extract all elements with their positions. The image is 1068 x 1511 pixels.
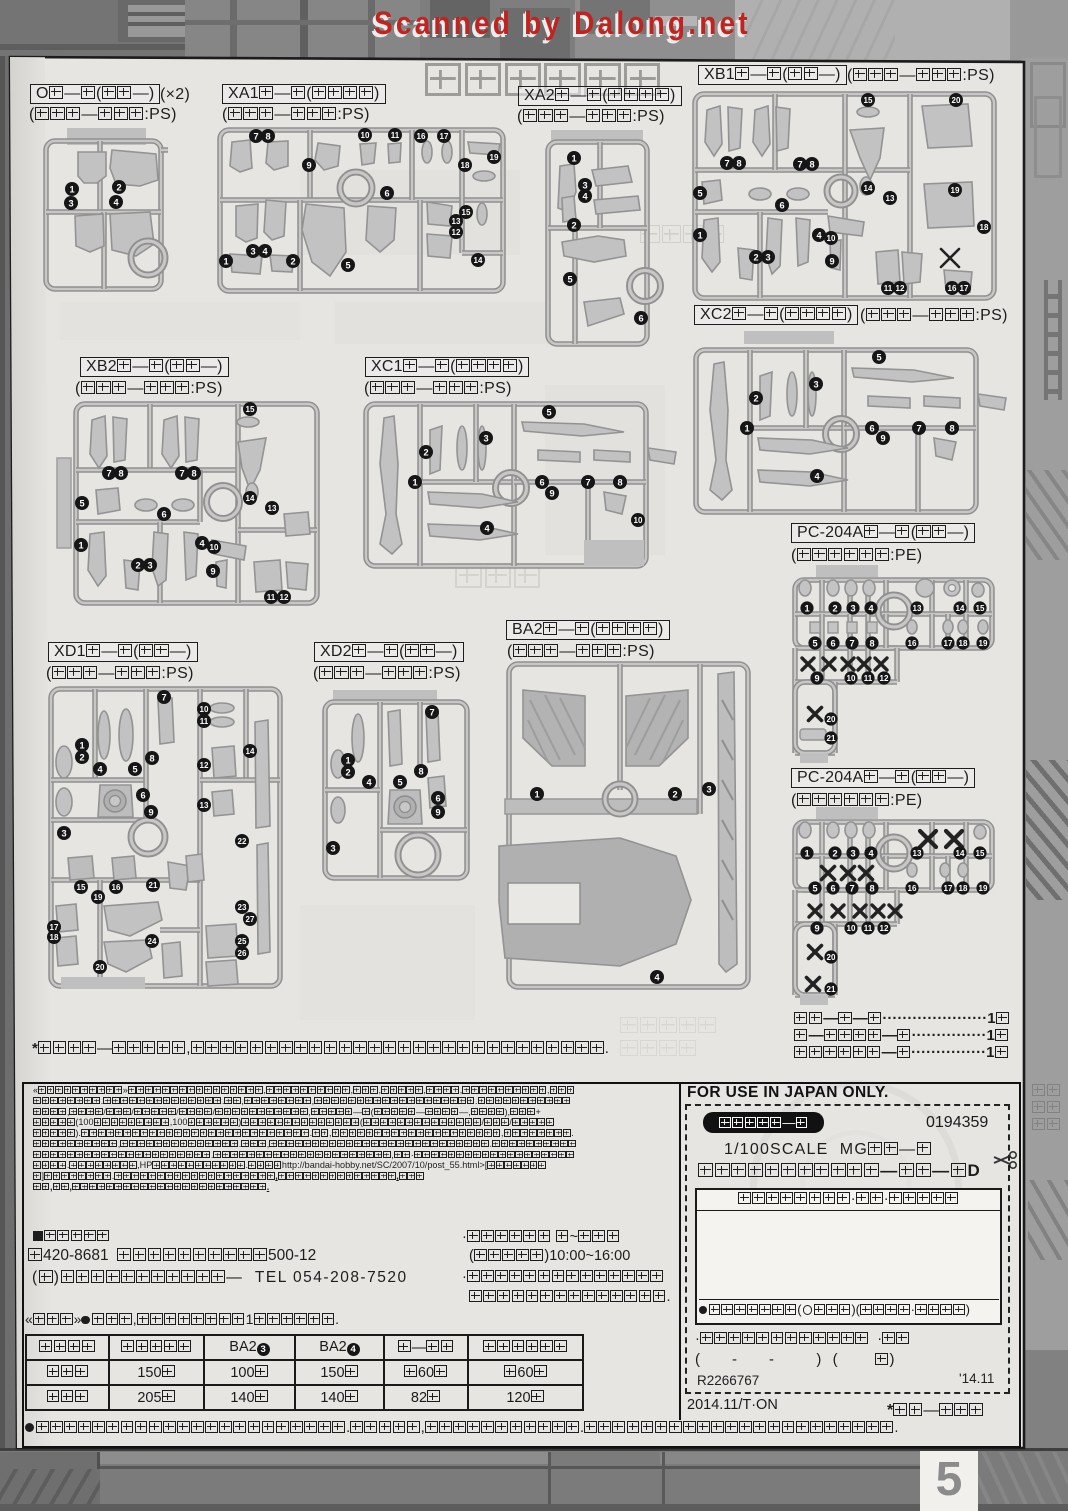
svg-text:7: 7	[585, 477, 590, 487]
svg-text:9: 9	[306, 160, 311, 170]
svg-text:11: 11	[391, 131, 400, 140]
svg-text:14: 14	[474, 256, 483, 265]
svg-text:7: 7	[106, 468, 111, 478]
svg-text:8: 8	[191, 468, 196, 478]
svg-text:23: 23	[238, 903, 247, 912]
svg-text:3: 3	[850, 603, 855, 613]
svg-text:4: 4	[366, 777, 372, 787]
svg-text:4: 4	[199, 538, 205, 548]
svg-text:12: 12	[200, 761, 209, 770]
svg-text:21: 21	[827, 985, 836, 994]
svg-text:18: 18	[959, 639, 968, 648]
svg-text:1: 1	[412, 477, 417, 487]
svg-text:11: 11	[864, 674, 873, 683]
svg-text:8: 8	[809, 159, 814, 169]
svg-text:12: 12	[896, 284, 905, 293]
svg-text:4: 4	[654, 972, 660, 982]
svg-text:1: 1	[534, 789, 539, 799]
svg-text:2: 2	[290, 256, 295, 266]
svg-text:1: 1	[78, 540, 83, 550]
svg-text:1: 1	[69, 184, 74, 194]
svg-text:5: 5	[812, 883, 817, 893]
svg-text:12: 12	[280, 593, 289, 602]
svg-text:5: 5	[132, 764, 137, 774]
svg-text:8: 8	[418, 766, 423, 776]
svg-text:1: 1	[571, 153, 576, 163]
svg-text:2: 2	[753, 252, 758, 262]
svg-text:3: 3	[250, 246, 255, 256]
svg-text:19: 19	[951, 186, 960, 195]
svg-text:11: 11	[200, 717, 209, 726]
svg-text:13: 13	[452, 217, 461, 226]
svg-text:20: 20	[827, 953, 836, 962]
svg-text:3: 3	[765, 252, 770, 262]
svg-text:2: 2	[832, 603, 837, 613]
svg-text:3: 3	[582, 180, 587, 190]
svg-text:4: 4	[868, 603, 874, 613]
svg-text:10: 10	[827, 234, 836, 243]
svg-text:8: 8	[869, 638, 874, 648]
svg-text:6: 6	[140, 790, 145, 800]
svg-text:6: 6	[435, 793, 440, 803]
svg-text:19: 19	[979, 884, 988, 893]
svg-text:26: 26	[238, 949, 247, 958]
svg-text:24: 24	[148, 937, 157, 946]
svg-text:12: 12	[880, 674, 889, 683]
svg-text:12: 12	[880, 924, 889, 933]
svg-text:4: 4	[113, 197, 119, 207]
svg-text:14: 14	[246, 747, 255, 756]
svg-text:22: 22	[238, 837, 247, 846]
svg-text:16: 16	[908, 639, 917, 648]
svg-text:9: 9	[148, 807, 153, 817]
svg-text:11: 11	[864, 924, 873, 933]
svg-text:13: 13	[886, 194, 895, 203]
svg-text:15: 15	[864, 96, 873, 105]
svg-text:7: 7	[916, 423, 921, 433]
svg-text:14: 14	[956, 849, 965, 858]
svg-text:6: 6	[830, 883, 835, 893]
svg-text:20: 20	[827, 715, 836, 724]
svg-text:1: 1	[345, 755, 350, 765]
svg-text:5: 5	[345, 260, 350, 270]
svg-text:14: 14	[246, 494, 255, 503]
svg-text:4: 4	[484, 523, 490, 533]
svg-text:1: 1	[744, 423, 749, 433]
svg-text:5: 5	[876, 352, 881, 362]
svg-text:7: 7	[161, 692, 166, 702]
svg-text:15: 15	[976, 604, 985, 613]
svg-text:17: 17	[944, 884, 953, 893]
svg-text:3: 3	[813, 379, 818, 389]
svg-text:3: 3	[147, 560, 152, 570]
svg-text:16: 16	[112, 883, 121, 892]
svg-text:19: 19	[94, 893, 103, 902]
svg-text:6: 6	[638, 313, 643, 323]
svg-text:17: 17	[944, 639, 953, 648]
svg-text:13: 13	[913, 849, 922, 858]
svg-text:20: 20	[96, 963, 105, 972]
svg-text:3: 3	[68, 198, 73, 208]
svg-text:9: 9	[210, 566, 215, 576]
svg-text:9: 9	[549, 488, 554, 498]
svg-text:1: 1	[804, 603, 809, 613]
svg-text:6: 6	[384, 188, 389, 198]
svg-text:7: 7	[724, 158, 729, 168]
svg-text:6: 6	[830, 638, 835, 648]
svg-text:6: 6	[539, 477, 544, 487]
svg-text:8: 8	[265, 131, 270, 141]
svg-text:17: 17	[960, 284, 969, 293]
svg-text:6: 6	[161, 509, 166, 519]
svg-text:5: 5	[546, 407, 551, 417]
svg-text:7: 7	[797, 159, 802, 169]
svg-text:4: 4	[868, 848, 874, 858]
svg-text:6: 6	[779, 200, 784, 210]
svg-text:18: 18	[461, 161, 470, 170]
svg-text:3: 3	[850, 848, 855, 858]
svg-text:2: 2	[832, 848, 837, 858]
svg-text:2: 2	[135, 560, 140, 570]
svg-text:13: 13	[268, 504, 277, 513]
svg-text:9: 9	[814, 923, 819, 933]
svg-text:1: 1	[79, 740, 84, 750]
svg-text:2: 2	[345, 767, 350, 777]
svg-text:14: 14	[864, 184, 873, 193]
svg-text:8: 8	[736, 158, 741, 168]
svg-text:21: 21	[827, 734, 836, 743]
svg-text:13: 13	[200, 801, 209, 810]
svg-text:3: 3	[61, 828, 66, 838]
svg-text:5: 5	[397, 777, 402, 787]
svg-text:19: 19	[490, 153, 499, 162]
svg-text:1: 1	[223, 256, 228, 266]
svg-text:19: 19	[979, 639, 988, 648]
svg-text:2: 2	[753, 393, 758, 403]
svg-text:9: 9	[829, 256, 834, 266]
svg-text:5: 5	[567, 274, 572, 284]
svg-text:8: 8	[617, 477, 622, 487]
svg-text:2: 2	[116, 182, 121, 192]
svg-text:17: 17	[440, 132, 449, 141]
svg-text:21: 21	[149, 881, 158, 890]
svg-text:3: 3	[330, 843, 335, 853]
svg-text:4: 4	[262, 246, 268, 256]
svg-text:15: 15	[77, 883, 86, 892]
svg-text:2: 2	[672, 789, 677, 799]
svg-text:12: 12	[452, 228, 461, 237]
svg-text:6: 6	[869, 423, 874, 433]
svg-text:13: 13	[913, 604, 922, 613]
svg-text:2: 2	[79, 752, 84, 762]
svg-text:16: 16	[948, 284, 957, 293]
svg-text:4: 4	[814, 471, 820, 481]
svg-text:18: 18	[959, 884, 968, 893]
svg-text:10: 10	[847, 674, 856, 683]
svg-text:8: 8	[149, 753, 154, 763]
svg-text:10: 10	[200, 705, 209, 714]
svg-text:5: 5	[697, 188, 702, 198]
svg-text:16: 16	[908, 884, 917, 893]
svg-text:11: 11	[267, 593, 276, 602]
svg-text:15: 15	[246, 405, 255, 414]
svg-text:4: 4	[816, 230, 822, 240]
svg-text:4: 4	[582, 191, 588, 201]
svg-text:18: 18	[980, 223, 989, 232]
svg-text:7: 7	[849, 638, 854, 648]
svg-text:7: 7	[253, 131, 258, 141]
svg-text:25: 25	[238, 937, 247, 946]
svg-text:18: 18	[50, 933, 59, 942]
svg-text:2: 2	[571, 220, 576, 230]
svg-text:10: 10	[361, 131, 370, 140]
svg-text:11: 11	[884, 284, 893, 293]
svg-text:1: 1	[804, 848, 809, 858]
svg-text:3: 3	[483, 433, 488, 443]
svg-text:8: 8	[869, 883, 874, 893]
svg-text:15: 15	[462, 208, 471, 217]
svg-text:7: 7	[179, 468, 184, 478]
svg-text:15: 15	[976, 849, 985, 858]
svg-text:7: 7	[849, 883, 854, 893]
svg-text:2: 2	[423, 447, 428, 457]
svg-text:14: 14	[956, 604, 965, 613]
svg-text:16: 16	[417, 132, 426, 141]
svg-text:1: 1	[697, 230, 702, 240]
svg-text:9: 9	[814, 673, 819, 683]
svg-text:10: 10	[210, 543, 219, 552]
svg-text:27: 27	[246, 915, 255, 924]
svg-text:4: 4	[97, 764, 103, 774]
svg-text:10: 10	[847, 924, 856, 933]
svg-text:8: 8	[949, 423, 954, 433]
svg-text:20: 20	[952, 96, 961, 105]
svg-text:9: 9	[435, 807, 440, 817]
svg-text:5: 5	[79, 498, 84, 508]
svg-text:9: 9	[880, 433, 885, 443]
svg-text:5: 5	[812, 638, 817, 648]
svg-text:7: 7	[429, 707, 434, 717]
svg-text:3: 3	[706, 784, 711, 794]
svg-text:8: 8	[118, 468, 123, 478]
svg-text:10: 10	[634, 516, 643, 525]
